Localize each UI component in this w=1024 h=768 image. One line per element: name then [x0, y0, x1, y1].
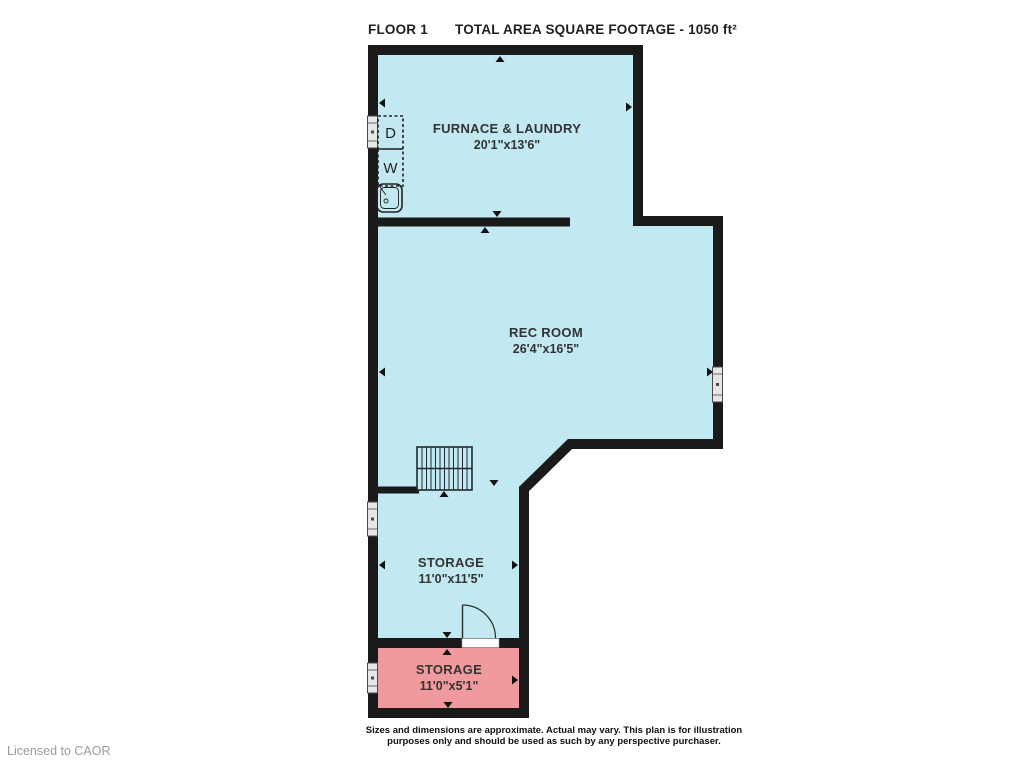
- room-label-storage: STORAGE 11'0"x11'5": [371, 554, 531, 588]
- total-area-label: TOTAL AREA SQUARE FOOTAGE - 1050 ft²: [455, 22, 737, 37]
- floor-label: FLOOR 1: [368, 22, 428, 37]
- window-icon-storage-left: [368, 502, 378, 536]
- washer-label: W: [383, 160, 398, 177]
- window-icon-furnace-left: [368, 116, 378, 148]
- room-name: STORAGE: [369, 661, 529, 678]
- room-name: FURNACE & LAUNDRY: [377, 120, 637, 137]
- disclaimer-line-1: Sizes and dimensions are approximate. Ac…: [363, 725, 745, 736]
- room-label-storage-2: STORAGE 11'0"x5'1": [369, 661, 529, 695]
- disclaimer-text: Sizes and dimensions are approximate. Ac…: [363, 725, 745, 747]
- floor-plan-page: D W FLOOR 1 TOTAL AR: [0, 0, 1024, 768]
- room-name: STORAGE: [371, 554, 531, 571]
- room-dimensions: 11'0"x11'5": [371, 571, 531, 588]
- floor-plan-drawing: D W: [0, 0, 1024, 768]
- window-icon-rec-right: [713, 367, 723, 402]
- room-label-furnace-laundry: FURNACE & LAUNDRY 20'1"x13'6": [377, 120, 637, 154]
- license-text: Licensed to CAOR: [7, 744, 111, 758]
- room-name: REC ROOM: [416, 324, 676, 341]
- room-dimensions: 20'1"x13'6": [377, 137, 637, 154]
- room-dimensions: 26'4"x16'5": [416, 341, 676, 358]
- room-label-rec-room: REC ROOM 26'4"x16'5": [416, 324, 676, 358]
- stairs-icon: [417, 447, 472, 490]
- door-threshold: [462, 639, 499, 648]
- disclaimer-line-2: purposes only and should be used as such…: [363, 736, 745, 747]
- room-dimensions: 11'0"x5'1": [369, 678, 529, 695]
